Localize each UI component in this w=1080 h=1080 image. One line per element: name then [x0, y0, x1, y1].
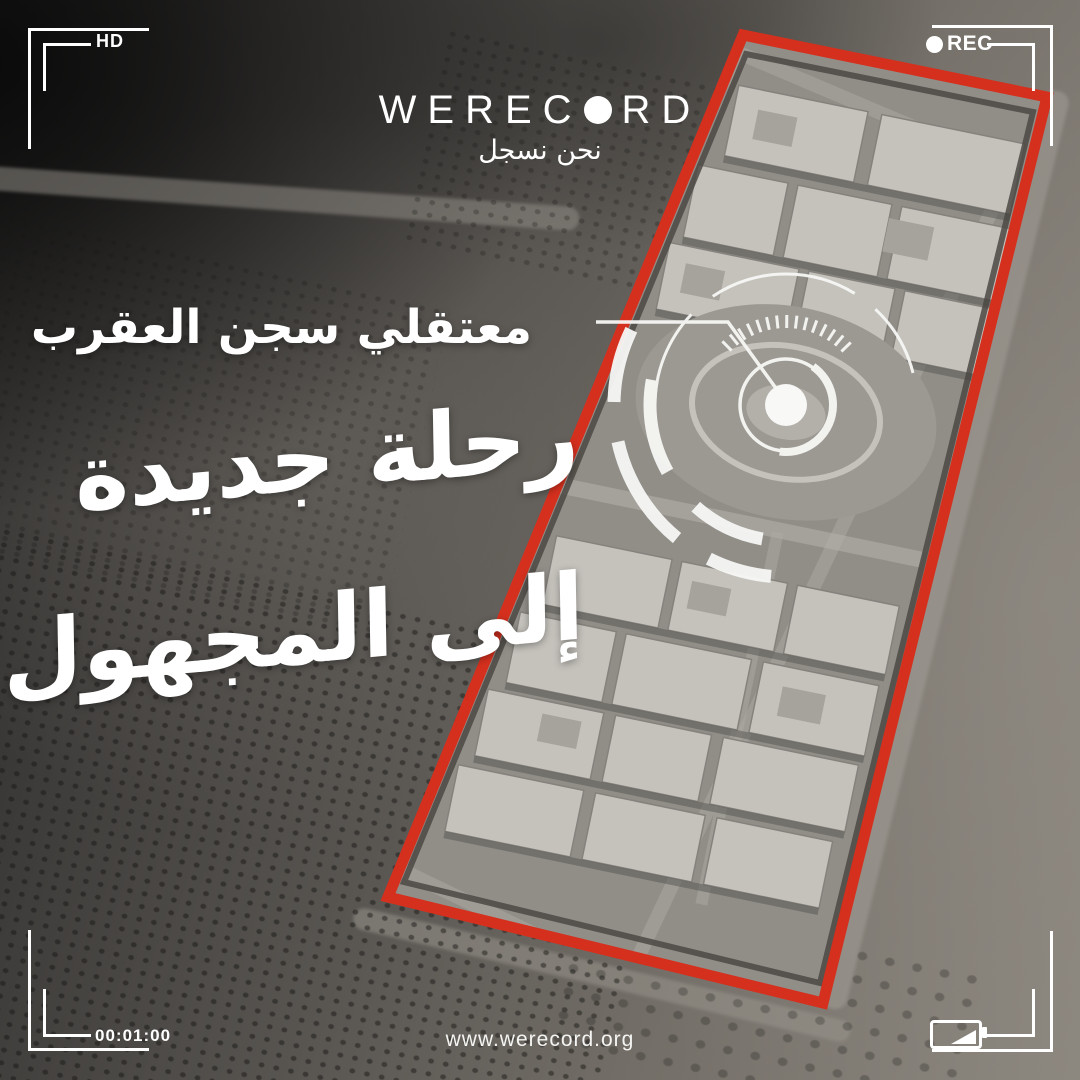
logo-text-right: RD: [622, 88, 702, 132]
poster-canvas: HD REC 00:01:00 WERECRD نحن نسجل www.wer…: [0, 0, 1080, 1080]
hd-label: HD: [96, 31, 124, 52]
rec-label: REC: [947, 32, 993, 56]
inner-bracket-top-left: [43, 43, 91, 91]
rec-dot-icon: [926, 36, 943, 53]
brand-logo: WERECRD: [0, 88, 1080, 133]
website-url[interactable]: www.werecord.org: [0, 1028, 1080, 1052]
brand-tagline: نحن نسجل: [0, 135, 1080, 166]
rec-indicator: REC: [926, 32, 993, 56]
inner-bracket-top-right: [987, 43, 1035, 91]
headline-line1: معتقلي سجن العقرب: [70, 300, 532, 355]
logo-text-left: WEREC: [379, 88, 583, 132]
logo-o-circle-icon: [584, 96, 612, 124]
brand-block: WERECRD نحن نسجل: [0, 88, 1080, 166]
